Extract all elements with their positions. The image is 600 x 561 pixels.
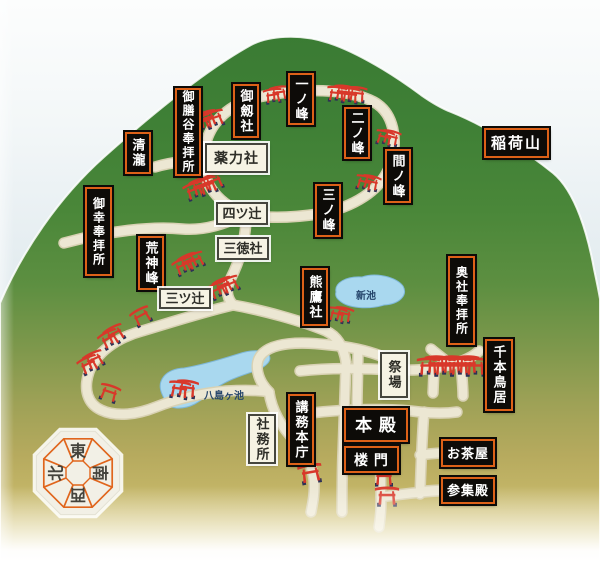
map-label-koujingamine[interactable]: 荒神峰 <box>138 236 164 290</box>
map-label-shamusho[interactable]: 社務所 <box>248 414 276 464</box>
map-label-sannomine[interactable]: 三ノ峰 <box>315 184 341 237</box>
map-label-roumon[interactable]: 楼 門 <box>344 446 399 473</box>
map-label-ichinomine[interactable]: 一ノ峰 <box>288 73 314 125</box>
map-label-gokou-yohaisho[interactable]: 御幸奉拝所 <box>85 187 112 276</box>
map-label-senbon-torii[interactable]: 千本鳥居 <box>485 339 513 411</box>
map-label-saijou[interactable]: 祭場 <box>380 352 408 398</box>
map-label-inariyama[interactable]: 稲荷山 <box>484 128 549 158</box>
map-label-yotsutsuji[interactable]: 四ツ辻 <box>216 202 268 225</box>
map-label-yakurikisha[interactable]: 薬力社 <box>205 143 268 173</box>
map-label-okusha-yohaisho[interactable]: 奥社奉拝所 <box>448 256 475 345</box>
map-label-koumu-honchou[interactable]: 講務本庁 <box>288 394 314 465</box>
inari-map: 新池 八島ヶ池 東 南 西 北 <box>0 0 600 561</box>
map-label-ninomine[interactable]: 二ノ峰 <box>344 107 370 159</box>
label-layer: 御膳谷奉拝所御劔社一ノ峰二ノ峰間ノ峰三ノ峰清瀧御幸奉拝所荒神峰熊鷹社奥社奉拝所千… <box>0 0 600 561</box>
map-label-kumatakasha[interactable]: 熊鷹社 <box>302 268 328 326</box>
map-label-ochaya[interactable]: お茶屋 <box>441 439 495 467</box>
map-label-mitsurugisha[interactable]: 御劔社 <box>233 84 259 138</box>
map-label-mitsutsuji[interactable]: 三ツ辻 <box>159 288 211 309</box>
map-label-santokusha[interactable]: 三徳社 <box>217 237 269 260</box>
map-label-ainomine[interactable]: 間ノ峰 <box>385 149 411 203</box>
map-label-honden[interactable]: 本 殿 <box>344 408 408 442</box>
map-label-sanshuuden[interactable]: 参集殿 <box>441 477 495 504</box>
map-label-kiyotaki[interactable]: 清瀧 <box>125 132 151 174</box>
map-label-gozendani-yohaisho[interactable]: 御膳谷奉拝所 <box>175 88 201 176</box>
